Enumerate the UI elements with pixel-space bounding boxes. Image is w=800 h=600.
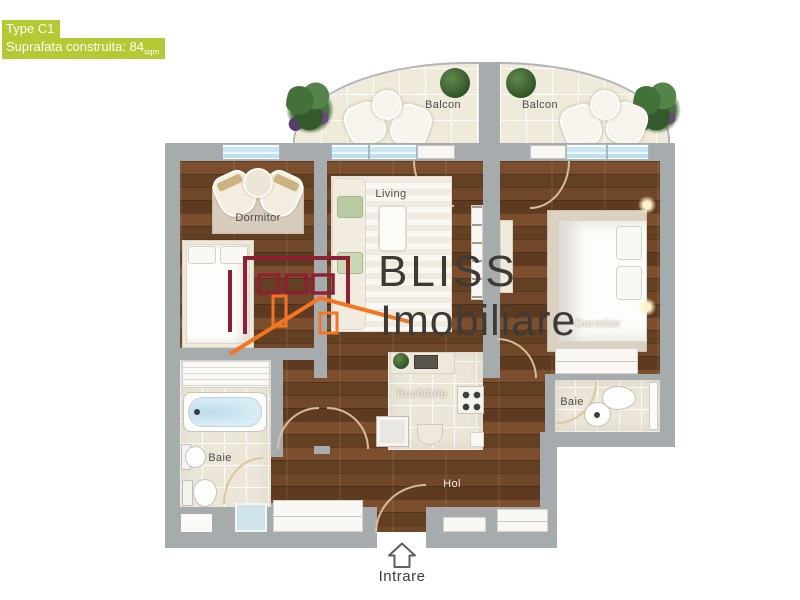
basin-tap: [594, 412, 600, 418]
radiator-icon: [649, 382, 658, 430]
window-bedroom-left: [222, 144, 280, 160]
window-bedroom-right-b: [607, 144, 649, 160]
wardrobe-icon: [443, 517, 486, 532]
floor-plan: Type C1 Suprafata construita: 84sqm Balc…: [0, 0, 800, 600]
window-living-b: [369, 144, 417, 160]
stove-icon: [457, 386, 484, 414]
room-label-dormitor-left: Dormitor: [212, 212, 304, 224]
potted-plant-icon: [440, 68, 470, 98]
window-bedroom-right-a: [566, 144, 607, 160]
wall-bottom-left: [165, 532, 377, 548]
room-label-balcon-left: Balcon: [418, 99, 468, 111]
wall-right: [660, 143, 675, 447]
wardrobe-icon: [182, 360, 270, 388]
bathtub-drain: [194, 409, 200, 415]
brand-name: BLISS: [378, 250, 518, 294]
bed-pillow: [188, 246, 216, 264]
coffee-table-icon: [378, 205, 407, 252]
nightstand-lamp-icon: [638, 196, 656, 214]
room-label-bucatarie: Bucătărie: [390, 388, 454, 400]
kitchen-cabinet: [470, 432, 484, 447]
wall-bottom-right: [426, 532, 557, 548]
nightstand-lamp-icon: [638, 298, 656, 316]
wall-bath-right-bottom: [540, 432, 675, 447]
area-unit: sqm: [144, 48, 159, 57]
room-label-baie-left: Baie: [198, 452, 242, 464]
plant-cluster-icon: [286, 78, 334, 142]
wall-bath-right-top: [545, 374, 660, 380]
window-living-a: [331, 144, 369, 160]
wardrobe-icon: [555, 348, 638, 374]
bistro-table-icon: [372, 90, 402, 120]
bistro-table-icon: [590, 90, 620, 120]
bath-niche: [181, 514, 212, 532]
balcony-door-living: [417, 145, 455, 159]
entrance-label: Intrare: [362, 568, 442, 585]
room-label-living: Living: [368, 188, 414, 200]
room-label-baie-right: Baie: [552, 396, 592, 408]
room-label-balcon-right: Balcon: [515, 99, 565, 111]
shower-icon: [235, 503, 267, 532]
plan-area-label: Suprafata construita: 84sqm: [2, 38, 165, 59]
potted-plant-icon: [506, 68, 536, 98]
kitchen-sink-icon: [376, 416, 409, 447]
wardrobe-icon: [273, 500, 363, 532]
plan-type-label: Type C1: [2, 20, 60, 38]
room-label-hol: Hol: [432, 478, 472, 490]
wall-balcony-divider: [479, 62, 500, 145]
sofa-pillow: [337, 196, 363, 218]
brand-subtitle: Imobiliare: [380, 300, 576, 343]
bistro-table-icon: [243, 168, 273, 198]
wall-left: [165, 143, 180, 548]
balcony-door-bedroom-right: [530, 145, 566, 159]
toilet-tank: [182, 480, 193, 506]
washbasin-icon: [417, 424, 443, 445]
bed-pillow: [616, 226, 642, 260]
bed-pillow: [616, 266, 642, 300]
entrance-arrow-icon: [384, 542, 420, 568]
wardrobe-icon: [497, 509, 548, 532]
